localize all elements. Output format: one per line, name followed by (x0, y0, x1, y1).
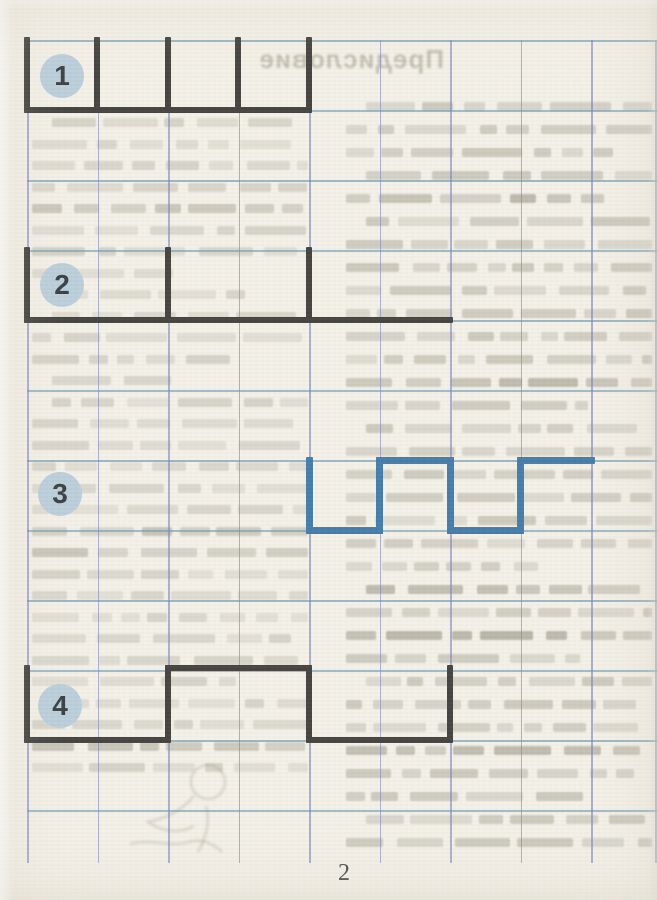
exercise-number-1: 1 (54, 60, 70, 92)
exercise-3-pattern-segment (517, 457, 524, 534)
exercise-1-pattern-segment (24, 107, 312, 113)
exercise-3-pattern-segment (517, 457, 595, 464)
exercise-2-pattern-segment (306, 247, 312, 323)
exercise-2-pattern-segment (24, 247, 30, 323)
exercise-4-pattern-segment (24, 665, 30, 743)
exercise-2-pattern-segment (24, 317, 453, 323)
exercise-1-pattern-segment (235, 37, 241, 113)
exercise-4-pattern-segment (447, 665, 453, 743)
exercise-1-pattern-segment (306, 37, 312, 113)
exercise-number-2: 2 (54, 269, 70, 301)
exercise-4-pattern-segment (306, 665, 312, 743)
pattern-layer (0, 0, 657, 900)
exercise-4-pattern-segment (165, 665, 312, 671)
exercise-2-pattern-segment (165, 247, 171, 323)
exercise-4-pattern-segment (306, 737, 453, 743)
exercise-1-pattern-segment (24, 37, 30, 113)
exercise-4-pattern-segment (24, 737, 171, 743)
exercise-4-pattern-segment (165, 665, 171, 743)
exercise-badge-4: 4 (38, 684, 82, 728)
exercise-number-3: 3 (52, 478, 68, 510)
workbook-page: Предисловие 1 2 3 4 2 (0, 0, 657, 900)
exercise-3-pattern-segment (376, 457, 383, 534)
exercise-badge-2: 2 (40, 263, 84, 307)
exercise-3-pattern-segment (447, 527, 524, 534)
page-number: 2 (328, 860, 360, 887)
exercise-badge-3: 3 (38, 472, 82, 516)
exercise-3-pattern-segment (376, 457, 454, 464)
exercise-1-pattern-segment (94, 37, 100, 113)
exercise-badge-1: 1 (40, 54, 84, 98)
exercise-1-pattern-segment (165, 37, 171, 113)
exercise-3-pattern-segment (306, 457, 313, 534)
exercise-3-pattern-segment (447, 457, 454, 534)
exercise-number-4: 4 (52, 690, 68, 722)
exercise-3-pattern-segment (306, 527, 383, 534)
